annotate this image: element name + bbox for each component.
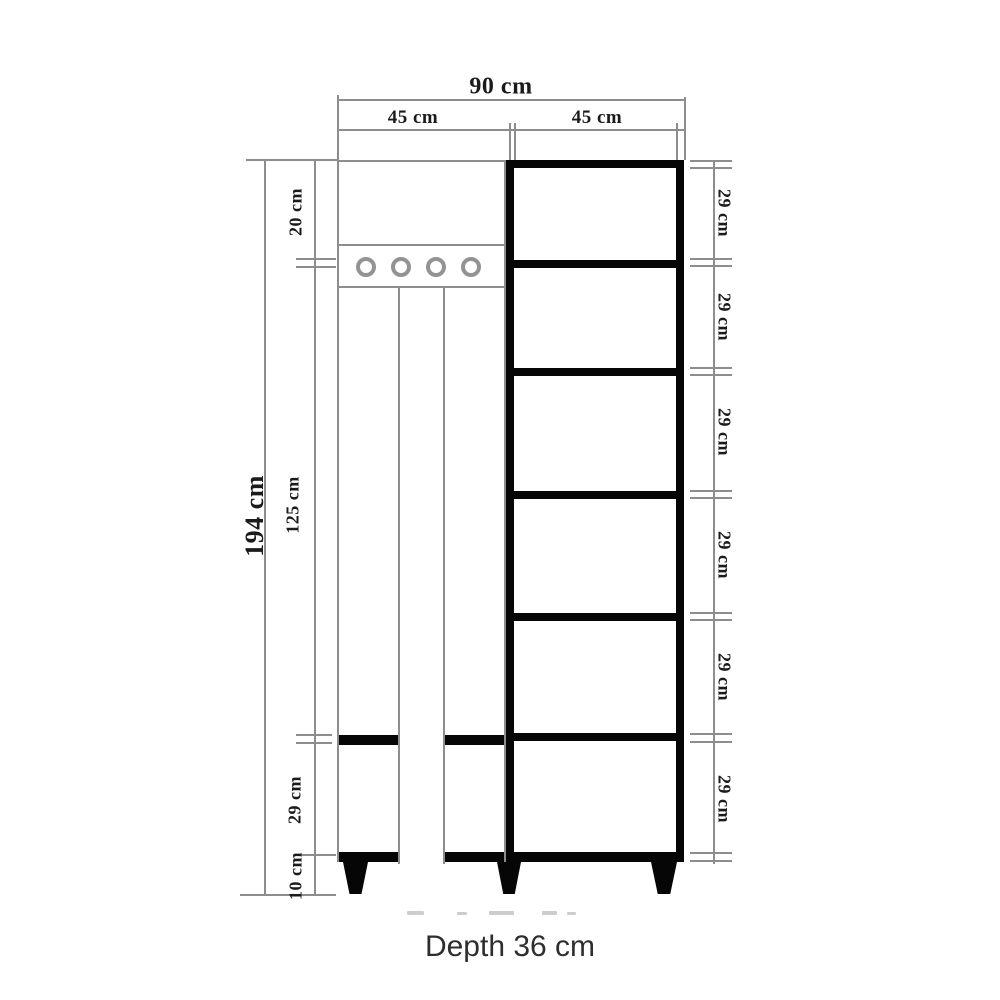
tick-right-5b <box>690 741 732 743</box>
depth-label: Depth 36 cm <box>425 930 595 964</box>
dim-label-shelf-5: 29 cm <box>714 653 735 701</box>
tick-right-3a <box>690 490 732 492</box>
shelf-board <box>514 260 676 268</box>
tick-left-20cm-b <box>296 266 336 268</box>
dim-label-legs-height-value: 10 cm <box>286 852 307 900</box>
tick-left-top <box>246 159 338 161</box>
dim-line-left-segments <box>314 159 316 896</box>
hook-rail-top-line <box>339 244 504 246</box>
dim-label-left-section-width: 45 cm <box>388 107 439 129</box>
faded-watermark-dash <box>457 912 467 915</box>
shelf-board <box>514 491 676 499</box>
dim-label-shelf-2: 29 cm <box>714 293 735 341</box>
dim-label-lower-compartment: 29 cm <box>285 776 306 824</box>
coat-hook-icon <box>391 257 411 277</box>
shelf-board <box>514 368 676 376</box>
dim-label-overall-height: 194 cm <box>240 475 270 557</box>
coat-hook-icon <box>461 257 481 277</box>
extension-line-top-right-b <box>684 97 686 160</box>
dim-label-right-section-width: 45 cm <box>572 107 623 129</box>
dim-label-hooks-panel: 20 cm <box>286 188 307 236</box>
faded-watermark-dash <box>489 911 514 915</box>
tick-right-2b <box>690 374 732 376</box>
coat-hook-icon <box>426 257 446 277</box>
coat-hook-icon <box>356 257 376 277</box>
tick-right-4b <box>690 619 732 621</box>
tick-right-5a <box>690 733 732 735</box>
dim-label-overall-width: 90 cm <box>469 74 532 101</box>
furniture-dimension-diagram: 90 cm 45 cm 45 cm 194 cm 20 cm 125 cm 29… <box>0 0 1000 1000</box>
shelf-column <box>506 160 684 862</box>
tick-right-3b <box>690 497 732 499</box>
extension-line-top-middle-a <box>509 123 511 160</box>
tick-right-6a <box>690 852 732 854</box>
faded-watermark-dash <box>407 911 424 915</box>
furniture-leg <box>343 862 368 894</box>
furniture-leg <box>651 862 677 894</box>
faded-watermark-dash <box>567 912 576 915</box>
dim-label-shelf-4: 29 cm <box>714 531 735 579</box>
tick-right-6b <box>690 860 732 862</box>
dim-label-shelf-3: 29 cm <box>714 408 735 456</box>
dim-label-shelf-6: 29 cm <box>714 775 735 823</box>
dim-label-middle-panel: 125 cm <box>283 476 304 533</box>
shelf-board <box>514 613 676 621</box>
extension-line-top-left <box>337 95 339 160</box>
tick-right-0a <box>690 160 732 162</box>
wardrobe-panel <box>337 160 506 862</box>
tick-right-2a <box>690 367 732 369</box>
dim-label-shelf-1: 29 cm <box>714 189 735 237</box>
extension-line-top-middle-b <box>514 123 516 160</box>
tick-right-1b <box>690 265 732 267</box>
tick-right-4a <box>690 612 732 614</box>
faded-watermark-dash <box>542 911 557 915</box>
vertical-divider-strip <box>398 288 445 864</box>
shelf-board <box>514 733 676 741</box>
tick-right-0b <box>690 167 732 169</box>
tick-left-125cm-a <box>296 734 332 736</box>
tick-left-125cm-b <box>296 742 332 744</box>
tick-right-1a <box>690 258 732 260</box>
tick-left-20cm-a <box>296 258 336 260</box>
extension-line-top-right-a <box>676 123 678 160</box>
furniture-leg <box>497 862 521 894</box>
